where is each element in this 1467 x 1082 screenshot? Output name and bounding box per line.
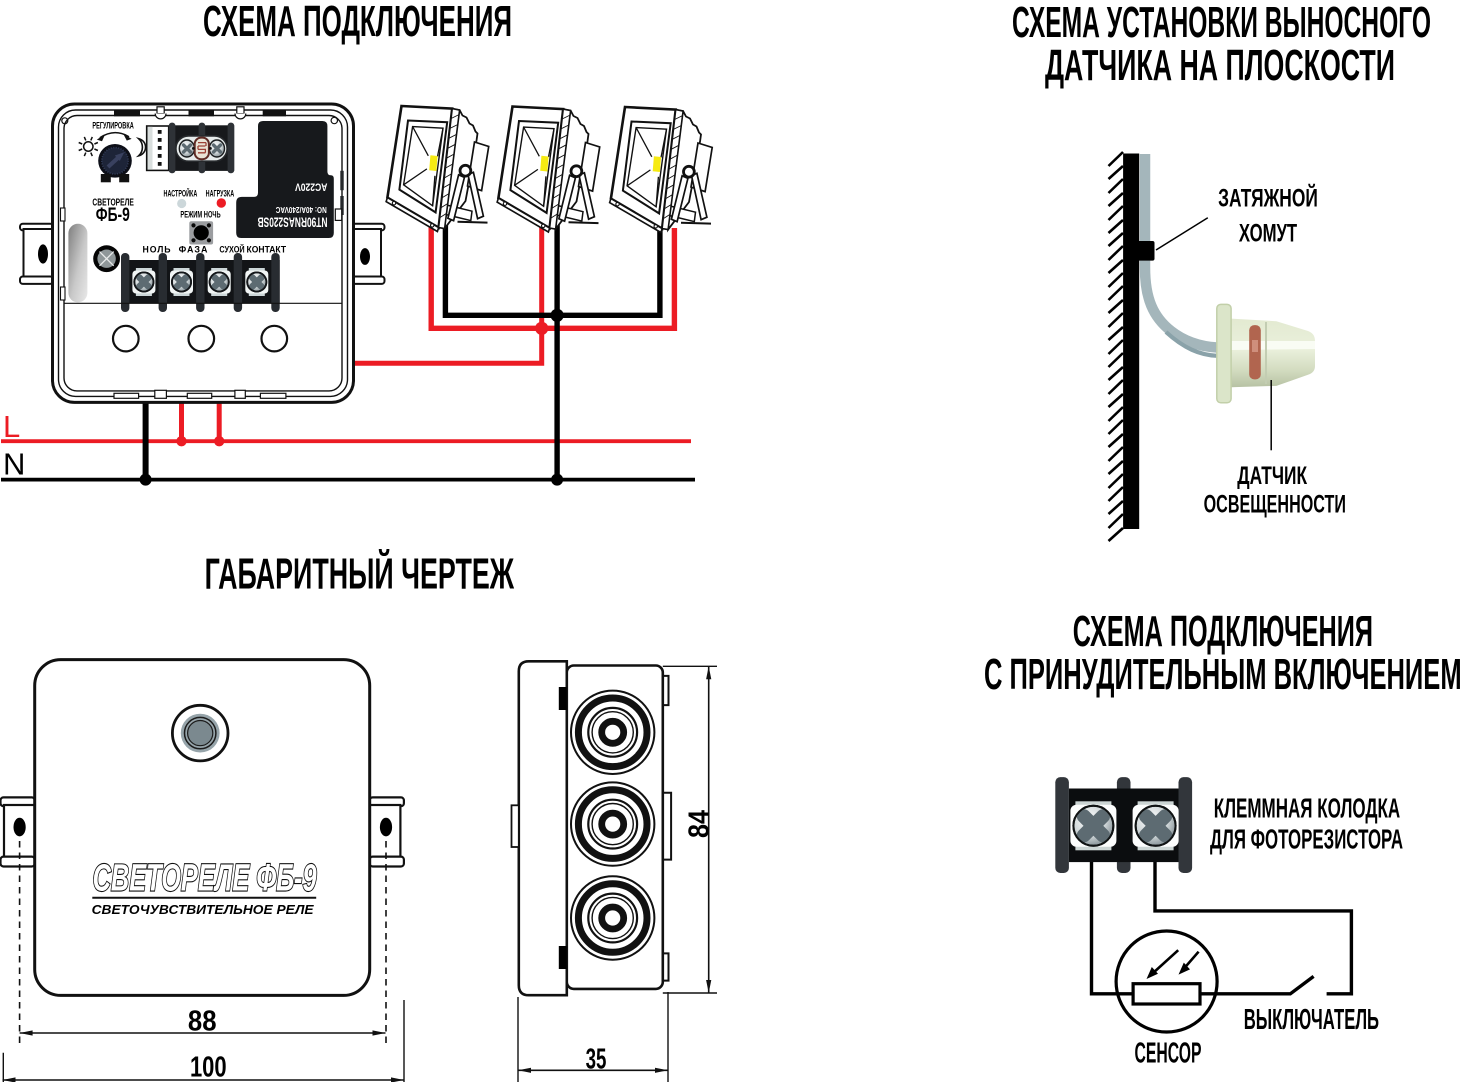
svg-text:ДАТЧИК: ДАТЧИК — [1237, 462, 1307, 490]
svg-text:ВЫКЛЮЧАТЕЛЬ: ВЫКЛЮЧАТЕЛЬ — [1244, 1004, 1379, 1036]
svg-text:ФАЗА: ФАЗА — [179, 245, 209, 255]
svg-text:СХЕМА ПОДКЛЮЧЕНИЯ: СХЕМА ПОДКЛЮЧЕНИЯ — [1073, 607, 1373, 656]
svg-text:100: 100 — [190, 1051, 227, 1082]
svg-text:НАСТРОЙКА: НАСТРОЙКА — [164, 187, 198, 198]
svg-text:ДЛЯ ФОТОРЕЗИСТОРА: ДЛЯ ФОТОРЕЗИСТОРА — [1210, 824, 1403, 855]
svg-text:СЕНСОР: СЕНСОР — [1135, 1037, 1202, 1069]
svg-text:СУХОЙ: СУХОЙ — [219, 244, 244, 255]
svg-text:L: L — [3, 409, 20, 444]
svg-text:N: N — [3, 447, 25, 482]
svg-text:С ПРИНУДИТЕЛЬНЫМ ВКЛЮЧЕНИЕМ: С ПРИНУДИТЕЛЬНЫМ ВКЛЮЧЕНИЕМ — [984, 650, 1462, 699]
svg-text:СХЕМА ПОДКЛЮЧЕНИЯ: СХЕМА ПОДКЛЮЧЕНИЯ — [203, 0, 512, 46]
svg-text:РЕГУЛИРОВКА: РЕГУЛИРОВКА — [92, 121, 134, 131]
svg-text:AC220V: AC220V — [294, 181, 327, 193]
svg-text:СВЕТОРЕЛЕ ФБ-9: СВЕТОРЕЛЕ ФБ-9 — [93, 858, 317, 900]
svg-text:НАГРУЗКА: НАГРУЗКА — [206, 188, 235, 198]
svg-text:ХОМУТ: ХОМУТ — [1239, 219, 1297, 247]
svg-text:НОЛЬ: НОЛЬ — [142, 245, 171, 255]
svg-text:ДАТЧИКА НА ПЛОСКОСТИ: ДАТЧИКА НА ПЛОСКОСТИ — [1045, 41, 1395, 90]
svg-text:88: 88 — [188, 1005, 217, 1037]
svg-text:КОНТАКТ: КОНТАКТ — [247, 245, 287, 255]
svg-text:ФБ-9: ФБ-9 — [96, 205, 130, 226]
svg-text:ОСВЕЩЕННОСТИ: ОСВЕЩЕННОСТИ — [1204, 491, 1346, 519]
svg-text:35: 35 — [586, 1043, 607, 1075]
svg-text:NT90RNAS220SB: NT90RNAS220SB — [257, 214, 327, 229]
svg-text:СВЕТОЧУВСТВИТЕЛЬНОЕ РЕЛЕ: СВЕТОЧУВСТВИТЕЛЬНОЕ РЕЛЕ — [92, 903, 315, 917]
svg-text:NO: 40A/240VAC: NO: 40A/240VAC — [276, 205, 327, 214]
svg-text:ЗАТЯЖНОЙ: ЗАТЯЖНОЙ — [1218, 182, 1318, 212]
svg-text:84: 84 — [684, 810, 716, 838]
svg-text:ГАБАРИТНЫЙ ЧЕРТЕЖ: ГАБАРИТНЫЙ ЧЕРТЕЖ — [205, 548, 515, 599]
svg-text:КЛЕММНАЯ КОЛОДКА: КЛЕММНАЯ КОЛОДКА — [1214, 793, 1401, 824]
svg-text:СХЕМА УСТАНОВКИ ВЫНОСНОГО: СХЕМА УСТАНОВКИ ВЫНОСНОГО — [1012, 0, 1431, 47]
svg-text:РЕЖИМ НОЧЬ: РЕЖИМ НОЧЬ — [180, 209, 221, 219]
